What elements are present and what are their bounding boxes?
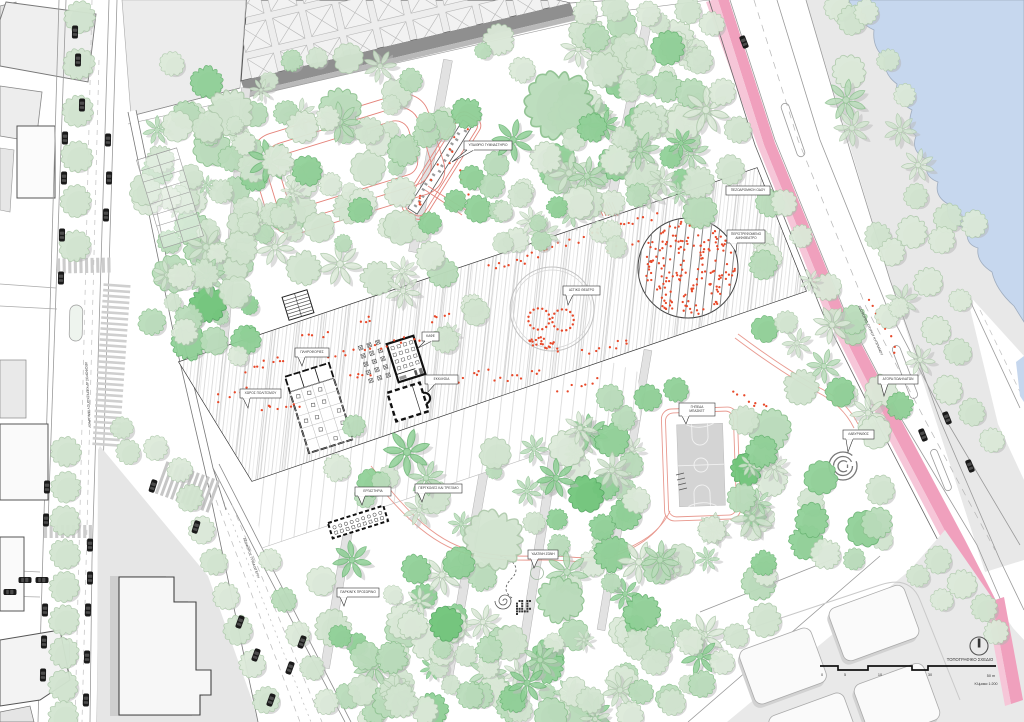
svg-text:ΠΕΖΟΔΡΟΜΗΣΗ ΟΔΟΥ: ΠΕΖΟΔΡΟΜΗΣΗ ΟΔΟΥ	[731, 188, 766, 192]
svg-text:ΥΠΑΙΘΡΙΟ ΓΥΜΝΑΣΤΗΡΙΟ: ΥΠΑΙΘΡΙΟ ΓΥΜΝΑΣΤΗΡΙΟ	[469, 143, 508, 147]
svg-text:ΑΓΟΡΑ ΠΟΔΗΛΑΤΩΝ: ΑΓΟΡΑ ΠΟΔΗΛΑΤΩΝ	[883, 377, 915, 381]
svg-text:ΧΩΡΟΣ ΠΟΛΙΤΙΣΜΟΥ: ΧΩΡΟΣ ΠΟΛΙΤΙΣΜΟΥ	[245, 391, 278, 395]
svg-text:5: 5	[844, 673, 846, 677]
svg-text:ΕΡΓΑΣΤΗΡΙΑ: ΕΡΓΑΣΤΗΡΙΑ	[363, 489, 383, 493]
svg-text:ΕΚΚΛΗΣΙΑ: ΕΚΚΛΗΣΙΑ	[434, 377, 451, 381]
svg-text:0: 0	[821, 673, 823, 677]
svg-text:30: 30	[928, 673, 932, 677]
svg-text:ΑΣΤΙΚΟ ΘΕΑΤΡΟ: ΑΣΤΙΚΟ ΘΕΑΤΡΟ	[569, 288, 595, 292]
svg-text:ΠΕΡΓΚΟΛΕΣ ΚΑΙ ΤΡΕΞΙΜΟ: ΠΕΡΓΚΟΛΕΣ ΚΑΙ ΤΡΕΞΙΜΟ	[418, 486, 459, 490]
svg-text:Κλίμακα 1:200: Κλίμακα 1:200	[975, 682, 998, 686]
svg-text:ΤΟΠΟΓΡΑΦΙΚΟ ΣΧΕΔΙΟ: ΤΟΠΟΓΡΑΦΙΚΟ ΣΧΕΔΙΟ	[947, 657, 994, 662]
svg-text:ΠΑΡΚΙΝΓΚ ΠΡΟΣΩΡΙΝΟ: ΠΑΡΚΙΝΓΚ ΠΡΟΣΩΡΙΝΟ	[340, 590, 376, 594]
svg-text:10: 10	[878, 673, 882, 677]
svg-text:ΚΑΦΕ: ΚΑΦΕ	[426, 334, 435, 338]
svg-text:50 m: 50 m	[987, 674, 995, 678]
svg-text:ΑΜΦΙΘΕΑΤΡΟ: ΑΜΦΙΘΕΑΤΡΟ	[735, 236, 757, 240]
svg-text:ΛΑΒΥΡΙΝΘΟΣ: ΛΑΒΥΡΙΝΘΟΣ	[848, 432, 869, 436]
svg-text:ΜΠΑΣΚΕΤ: ΜΠΑΣΚΕΤ	[689, 409, 704, 413]
svg-text:ΥΔΑΤΙΝΗ ΖΩΝΗ: ΥΔΑΤΙΝΗ ΖΩΝΗ	[531, 552, 555, 556]
svg-text:ΠΛΗΡΟΦΟΡΙΕΣ: ΠΛΗΡΟΦΟΡΙΕΣ	[300, 350, 323, 354]
